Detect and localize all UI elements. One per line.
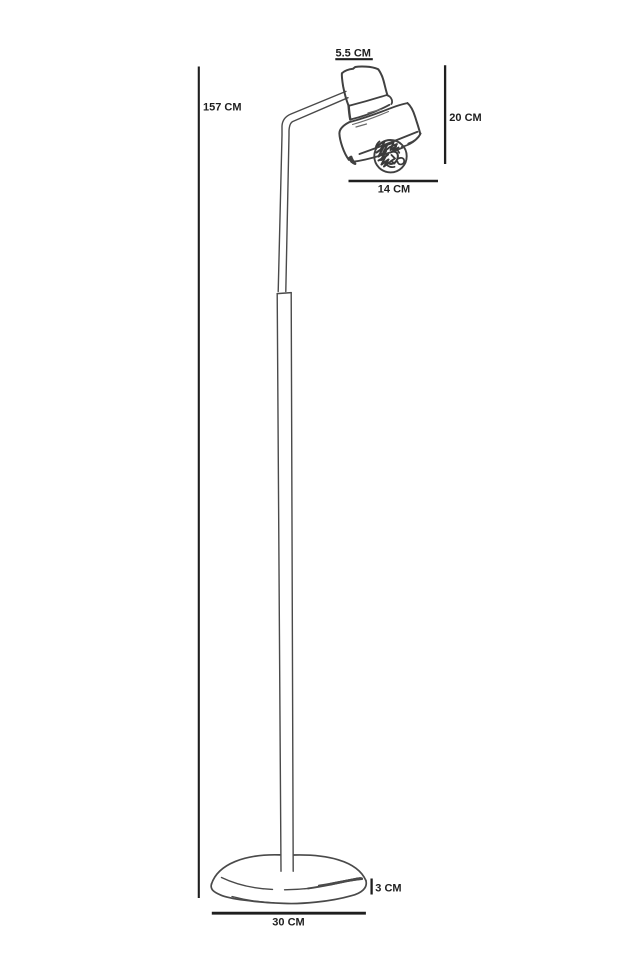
svg-text:30 CM: 30 CM [272, 916, 304, 928]
svg-text:14 CM: 14 CM [378, 183, 410, 195]
svg-text:5.5 CM: 5.5 CM [336, 48, 371, 60]
svg-text:20 CM: 20 CM [449, 112, 481, 124]
svg-text:157 CM: 157 CM [203, 101, 242, 113]
svg-text:3 CM: 3 CM [375, 883, 401, 895]
